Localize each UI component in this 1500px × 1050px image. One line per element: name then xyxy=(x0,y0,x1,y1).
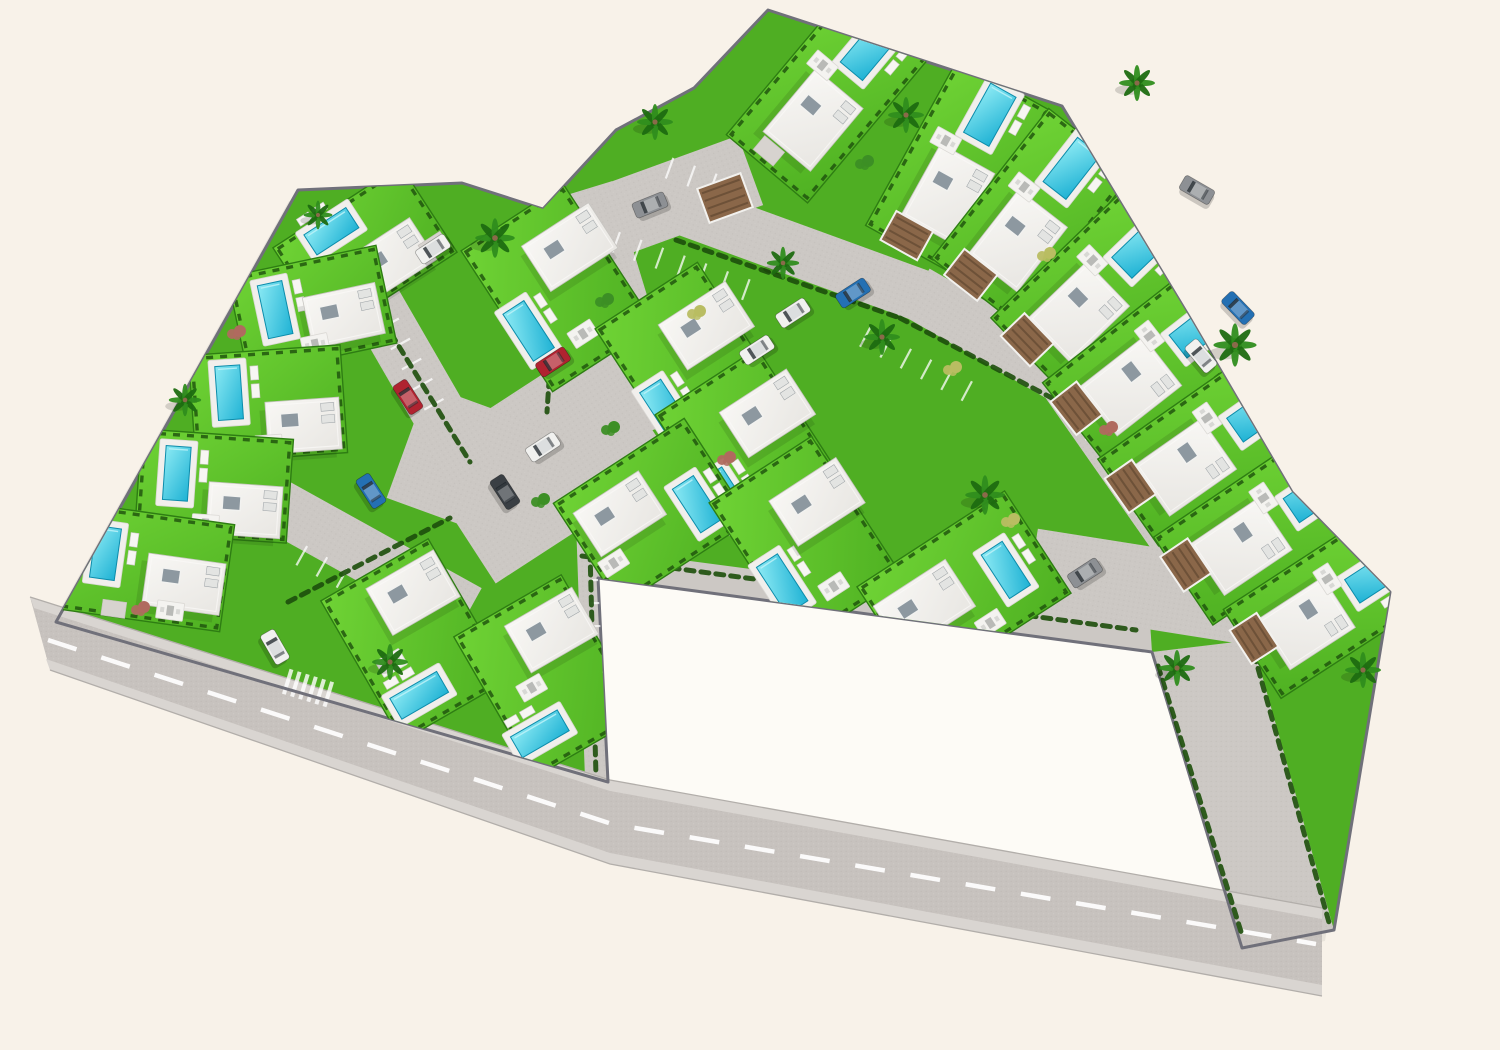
ac-unit xyxy=(321,414,335,423)
car-gray xyxy=(1176,175,1217,211)
car-blue xyxy=(1217,290,1257,330)
ac-unit xyxy=(263,502,277,511)
masterplan-aerial-view xyxy=(0,0,1500,1050)
skylight xyxy=(161,568,181,584)
ac-unit xyxy=(264,491,278,500)
ac-unit xyxy=(204,578,218,588)
site-plan-render xyxy=(0,0,1500,1050)
palm-tree xyxy=(165,384,201,416)
skylight xyxy=(280,413,299,428)
palm-tree xyxy=(1115,65,1155,101)
ac-unit xyxy=(321,402,335,411)
terrace xyxy=(155,600,184,622)
skylight xyxy=(222,495,241,510)
driveway xyxy=(101,599,127,618)
skylight xyxy=(319,303,340,320)
ac-unit xyxy=(206,566,220,576)
